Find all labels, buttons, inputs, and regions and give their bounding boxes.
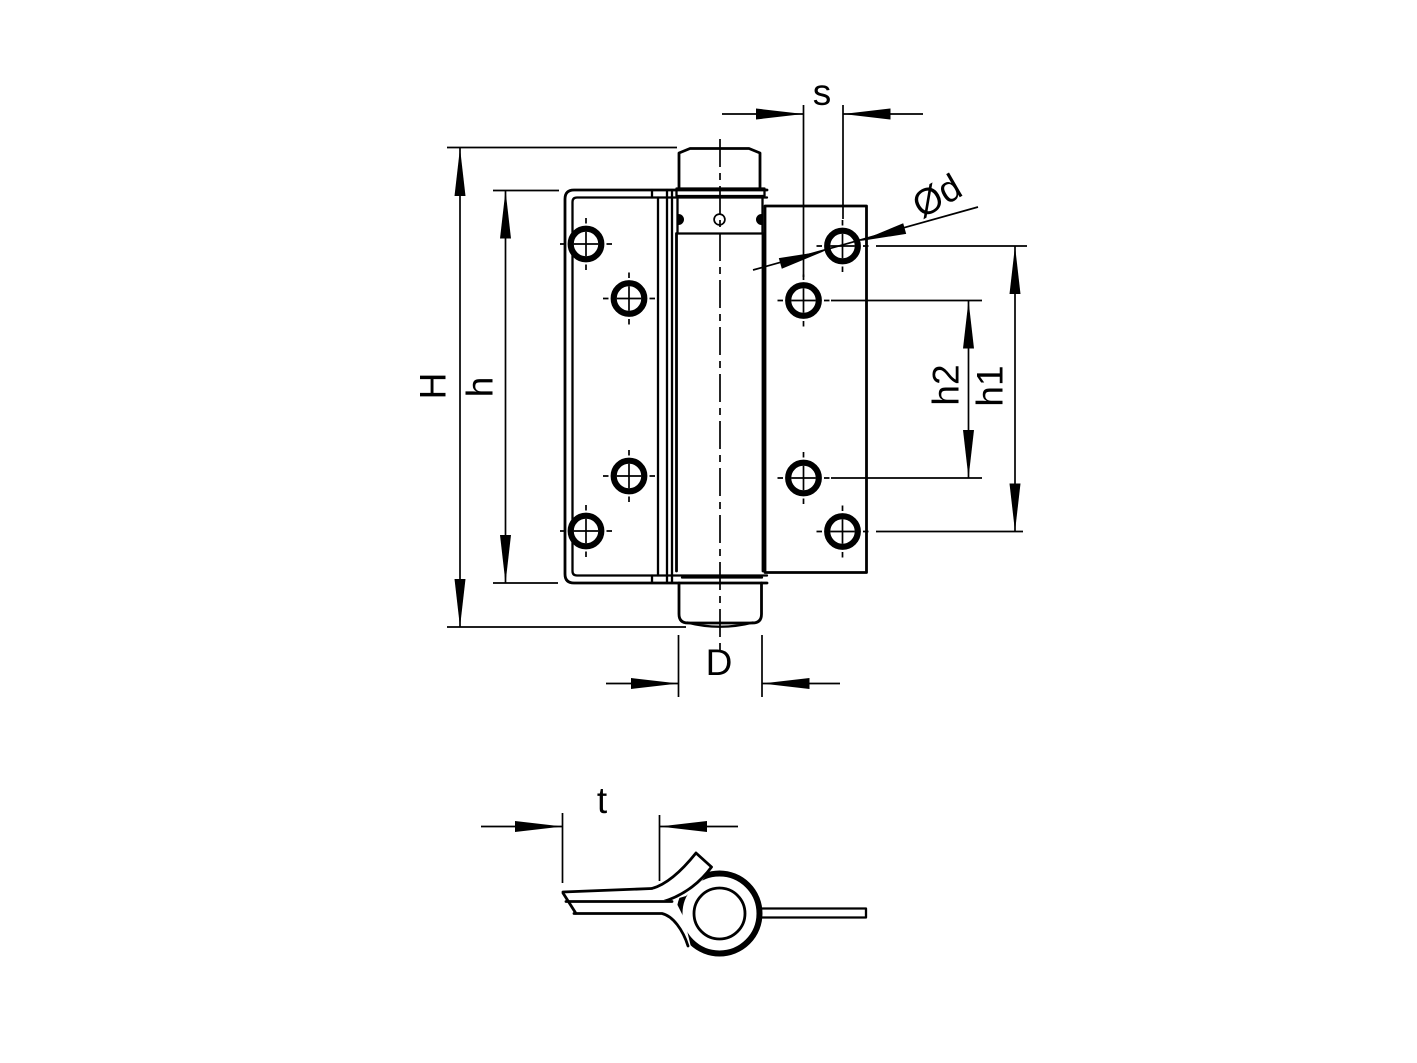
dim-label-gap: s <box>813 72 832 113</box>
screw-hole <box>560 218 612 270</box>
screw-hole <box>817 220 869 272</box>
front-view: H h s Ød h1 <box>413 72 1028 697</box>
tension-edge-hole <box>756 214 762 225</box>
dimension-h2: h2 <box>831 301 982 479</box>
dim-label-h2: h2 <box>926 364 967 405</box>
left-leaf-fold-lines <box>658 190 672 583</box>
tension-edge-hole <box>679 214 685 225</box>
dim-label-leaf-thickness: t <box>597 780 608 821</box>
screw-hole <box>560 505 612 557</box>
dimension-h: h <box>460 191 560 584</box>
dim-label-leaf-height: h <box>460 377 501 398</box>
dim-label-hole-diameter: Ød <box>905 166 968 226</box>
dim-label-barrel-diameter: D <box>706 642 733 683</box>
pin-leaf-section <box>759 909 866 918</box>
screw-hole <box>603 273 655 325</box>
technical-drawing: H h s Ød h1 <box>0 0 1417 1063</box>
knuckle-bore <box>694 888 745 939</box>
screw-hole <box>817 506 869 558</box>
dim-label-overall-height: H <box>413 373 454 400</box>
dimension-D: D <box>606 635 840 697</box>
left-leaf <box>560 190 767 583</box>
drawing-canvas: H h s Ød h1 <box>0 0 1417 1063</box>
dim-label-h1: h1 <box>970 365 1011 406</box>
screw-hole <box>778 275 830 327</box>
screw-hole <box>778 452 830 504</box>
screw-hole <box>603 450 655 502</box>
spring-barrel <box>677 139 765 650</box>
left-leaf-inner-edge <box>573 198 768 576</box>
dimension-H: H <box>413 148 687 628</box>
section-view: t <box>481 780 866 954</box>
